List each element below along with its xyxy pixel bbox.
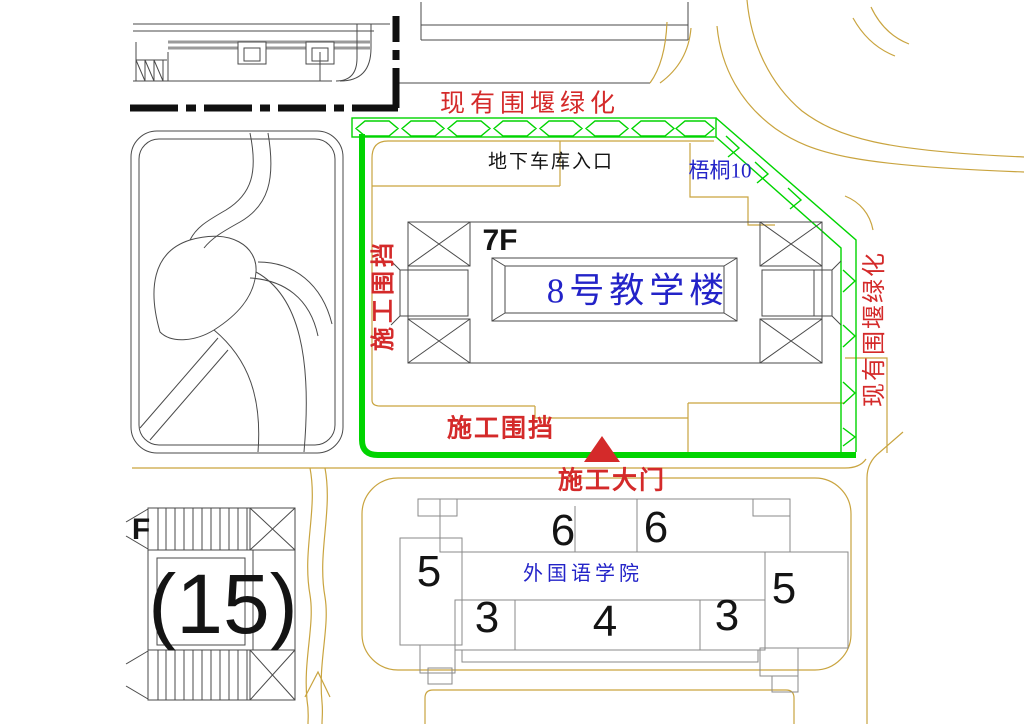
garage-entrance-label: 地下车库入口 xyxy=(488,153,614,172)
unit-number: 5 xyxy=(417,550,441,594)
tree-label: 梧桐10 xyxy=(689,161,752,182)
unit-number: 3 xyxy=(715,594,739,638)
building-8-label: 8号教学楼 xyxy=(547,274,730,309)
fence-left-label: 施工围挡 xyxy=(372,239,396,351)
hedge-top-label: 现有围堰绿化 xyxy=(440,92,620,117)
gate-label: 施工大门 xyxy=(558,469,666,494)
topleft-structure-outline xyxy=(133,24,390,81)
unit-number: 6 xyxy=(551,509,575,553)
building-f-label: F xyxy=(132,515,150,545)
building-15-label: (15) xyxy=(148,562,297,646)
unit-number: 3 xyxy=(475,596,499,640)
gate-triangle-icon xyxy=(584,436,620,462)
hedge-right-label: 现有围堰绿化 xyxy=(863,251,887,407)
floor-label: 7F xyxy=(482,226,517,256)
top-building-outline xyxy=(397,2,688,83)
construction-site-plan: 现有围堰绿化 地下车库入口 梧桐10 施工围挡 7F 8号教学楼 现有围堰绿化 … xyxy=(0,0,1024,724)
unit-number: 6 xyxy=(644,506,668,550)
college-label: 外国语学院 xyxy=(523,564,643,584)
unit-number: 4 xyxy=(593,600,617,644)
hatch-marks xyxy=(136,60,167,81)
unit-number: 5 xyxy=(772,567,796,611)
fence-bottom-label: 施工围挡 xyxy=(447,417,555,442)
park-paths xyxy=(131,131,343,453)
